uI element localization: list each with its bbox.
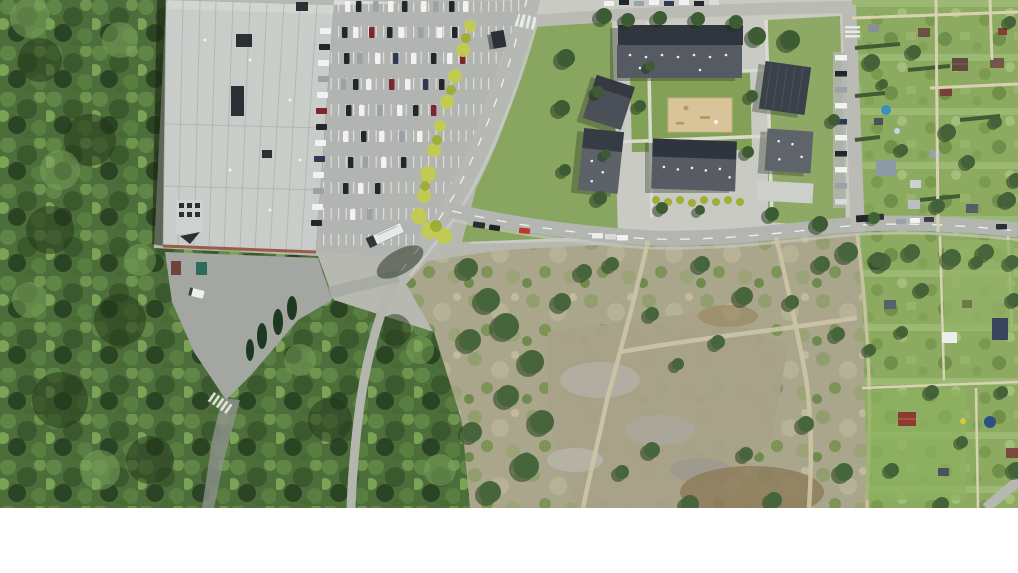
round-pool (984, 416, 996, 428)
green-container (196, 262, 207, 275)
apartment-block-south (651, 139, 737, 192)
screenshot: Ortofotomapa © Geoportal.gov.pl Powered … (0, 0, 1018, 573)
red-car (519, 227, 531, 234)
garages-building (757, 181, 814, 204)
apartment-block-southeast (765, 128, 814, 173)
east-street (849, 5, 858, 232)
playground (668, 98, 732, 132)
pool (881, 105, 891, 115)
attribution-bar: Ortofotomapa © Geoportal.gov.pl Powered … (0, 508, 1018, 573)
brown-container (171, 261, 181, 275)
apartment-block-northeast (759, 61, 811, 115)
aerial-photo (0, 0, 1018, 508)
map-viewport[interactable] (0, 0, 1018, 508)
apartment-block-north (617, 25, 743, 78)
zebra-crossing-east (845, 26, 860, 38)
